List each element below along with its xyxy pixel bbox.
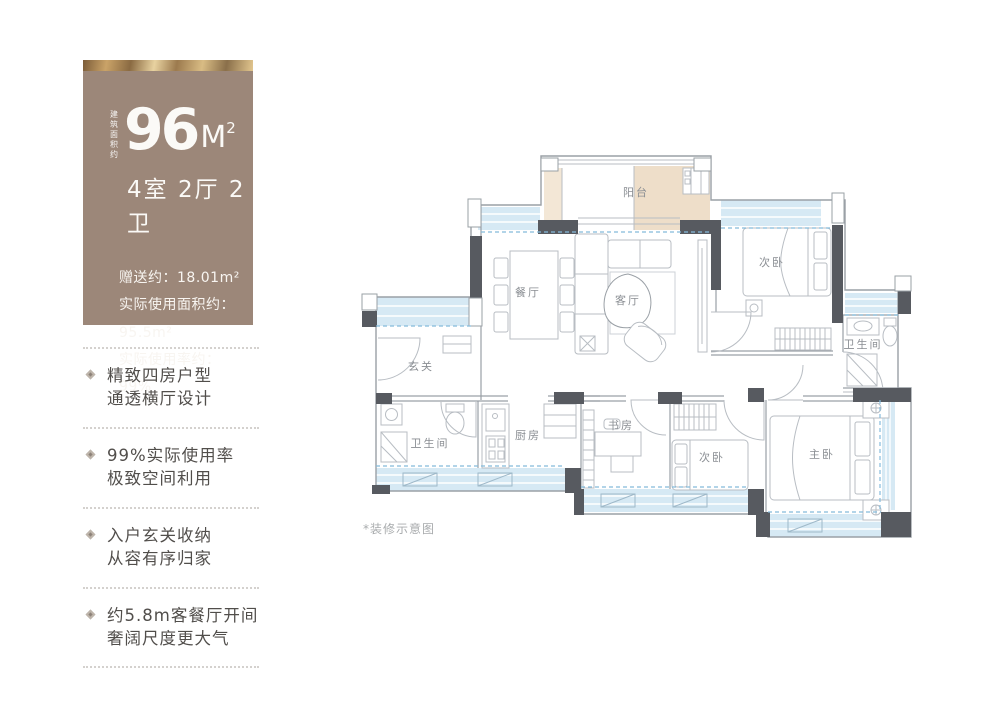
stat-bonus-area: 赠送约：18.01m²: [119, 265, 253, 292]
feature-line: 99%实际使用率: [107, 446, 234, 465]
feature-line: 从容有序归家: [107, 549, 212, 568]
room-label-bedroom2-bottom: 次卧: [699, 450, 725, 464]
feature-item: 99%实际使用率极致空间利用: [83, 429, 259, 509]
page: { "card": { "area_caption": "建筑面积约", "ar…: [0, 0, 1000, 702]
room-label-kitchen: 厨房: [515, 429, 541, 442]
diamond-bullet-icon: [86, 529, 96, 539]
feature-line: 奢阔尺度更大气: [107, 629, 230, 648]
feature-line: 约5.8m客餐厅开间: [107, 606, 258, 625]
floor-plan: 阳台 餐厅 客厅 次卧 卫生间 玄关 卫生间 厨房 书房 次卧 主卧: [358, 148, 928, 613]
feature-item: 入户玄关收纳从容有序归家: [83, 509, 259, 589]
diamond-bullet-icon: [86, 370, 96, 380]
feature-line: 通透横厅设计: [107, 389, 212, 408]
room-layout-line: 4室 2厅 2卫: [127, 170, 253, 238]
diamond-bullet-icon: [86, 609, 96, 619]
room-label-bath-left: 卫生间: [411, 436, 450, 450]
room-label-study: 书房: [608, 419, 634, 432]
room-label-living: 客厅: [615, 293, 641, 307]
feature-line: 精致四房户型: [107, 366, 212, 385]
area-caption-vertical: 建筑面积约: [110, 110, 119, 160]
area-info-card: 建筑面积约 96 M2 4室 2厅 2卫 赠送约：18.01m² 实际使用面积约…: [83, 60, 253, 325]
room-label-master: 主卧: [809, 448, 835, 461]
room-label-bath-right: 卫生间: [844, 337, 883, 351]
feature-line: 入户玄关收纳: [107, 526, 212, 545]
room-label-bedroom2-top: 次卧: [759, 255, 785, 269]
gold-gradient-band: [83, 60, 253, 71]
decoration-note: *装修示意图: [363, 520, 435, 537]
area-unit-sup: 2: [226, 119, 236, 137]
feature-list: 精致四房户型通透横厅设计 99%实际使用率极致空间利用 入户玄关收纳从容有序归家…: [83, 347, 259, 668]
stat-usable-area: 实际使用面积约：95.5m²: [119, 292, 253, 347]
area-value: 96: [124, 101, 197, 159]
feature-line: 极致空间利用: [107, 469, 212, 488]
area-unit: M2: [200, 121, 235, 153]
feature-item: 精致四房户型通透横厅设计: [83, 349, 259, 429]
room-label-entry: 玄关: [408, 359, 434, 373]
room-label-balcony: 阳台: [623, 185, 649, 199]
diamond-bullet-icon: [86, 449, 96, 459]
room-label-dining: 餐厅: [515, 285, 541, 299]
feature-item: 约5.8m客餐厅开间奢阔尺度更大气: [83, 589, 259, 669]
